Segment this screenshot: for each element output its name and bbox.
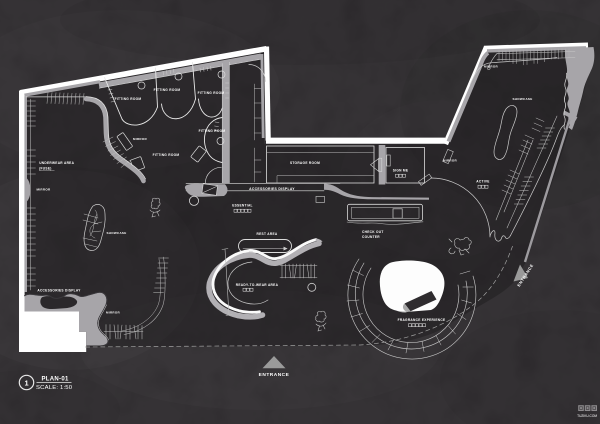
svg-text:SHOWCASE: SHOWCASE bbox=[106, 231, 126, 235]
svg-text:1: 1 bbox=[24, 378, 28, 387]
svg-text:FITTING ROOM: FITTING ROOM bbox=[153, 153, 180, 157]
svg-text:ACTIVE: ACTIVE bbox=[476, 180, 490, 184]
svg-text:COUNTER: COUNTER bbox=[362, 235, 380, 239]
svg-text:ACCESSORIES DISPLAY: ACCESSORIES DISPLAY bbox=[249, 187, 295, 191]
svg-text:REST AREA: REST AREA bbox=[257, 232, 278, 236]
svg-text:(FUSE): (FUSE) bbox=[39, 166, 51, 170]
svg-text:FITTING ROOM: FITTING ROOM bbox=[115, 97, 142, 101]
svg-text:TUZIKU.COM: TUZIKU.COM bbox=[577, 414, 597, 418]
svg-text:ESSENTIAL: ESSENTIAL bbox=[232, 204, 253, 208]
svg-text:SIGN ME: SIGN ME bbox=[393, 169, 409, 173]
svg-text:PLAN-01: PLAN-01 bbox=[42, 377, 69, 383]
svg-text:STORAGE ROOM: STORAGE ROOM bbox=[290, 161, 320, 165]
svg-text:CHECK OUT: CHECK OUT bbox=[362, 230, 384, 234]
svg-text:MIRROR: MIRROR bbox=[443, 159, 457, 163]
svg-text:ENTRANCE: ENTRANCE bbox=[259, 372, 290, 378]
svg-text:MIRROR: MIRROR bbox=[133, 137, 147, 141]
svg-text:ACCESSORIES DISPLAY: ACCESSORIES DISPLAY bbox=[37, 289, 81, 293]
svg-text:FRAGRANCE EXPERIENCE: FRAGRANCE EXPERIENCE bbox=[398, 318, 446, 322]
svg-text:MIRROR: MIRROR bbox=[484, 65, 498, 69]
svg-text:READY-TO-WEAR AREA: READY-TO-WEAR AREA bbox=[236, 283, 279, 287]
svg-text:SHOWCASE: SHOWCASE bbox=[512, 97, 532, 101]
svg-text:MIRROR: MIRROR bbox=[37, 187, 51, 191]
svg-text:FITTING ROOM: FITTING ROOM bbox=[199, 129, 226, 133]
svg-text:UNDERWEAR AREA: UNDERWEAR AREA bbox=[39, 161, 74, 165]
svg-text:FITTING ROOM: FITTING ROOM bbox=[198, 91, 225, 95]
svg-text:MIRROR: MIRROR bbox=[106, 311, 120, 315]
svg-text:SCALE: 1:50: SCALE: 1:50 bbox=[36, 385, 73, 391]
svg-text:FITTING ROOM: FITTING ROOM bbox=[154, 88, 181, 92]
